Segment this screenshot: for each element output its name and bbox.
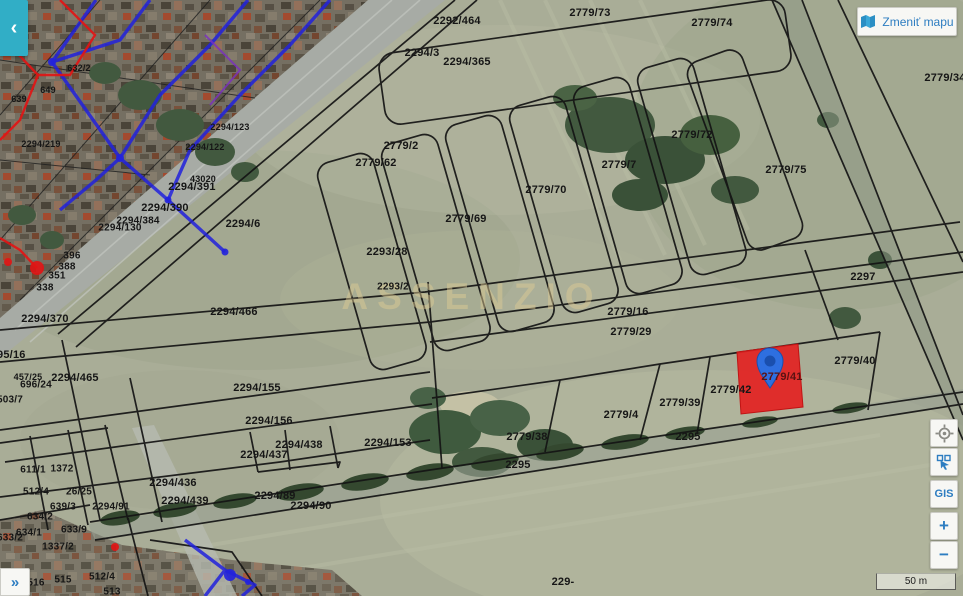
- chevrons-right-icon: »: [11, 574, 19, 591]
- map-canvas[interactable]: [0, 0, 963, 596]
- select-features-button[interactable]: [930, 448, 958, 476]
- zoom-out-button[interactable]: −: [930, 541, 958, 569]
- map-icon: [860, 14, 876, 29]
- locate-button[interactable]: [930, 419, 958, 447]
- scale-bar: 50 m: [876, 573, 956, 590]
- minus-icon: −: [939, 545, 949, 565]
- select-cursor-icon: [936, 454, 952, 470]
- change-map-label: Zmeniť mapu: [882, 15, 953, 29]
- zoom-in-button[interactable]: +: [930, 512, 958, 540]
- plus-icon: +: [939, 516, 949, 536]
- target-icon: [935, 424, 954, 443]
- gis-button[interactable]: GIS: [930, 480, 958, 508]
- scale-label: 50 m: [905, 576, 927, 587]
- collapse-panel-button[interactable]: ‹: [0, 0, 28, 56]
- change-map-button[interactable]: Zmeniť mapu: [857, 7, 957, 36]
- chevron-left-icon: ‹: [11, 17, 18, 40]
- map-viewer: ASSENZIO 2779/732779/742779/342292/46422…: [0, 0, 963, 596]
- expand-panel-button[interactable]: »: [0, 568, 30, 596]
- gis-label: GIS: [935, 488, 954, 500]
